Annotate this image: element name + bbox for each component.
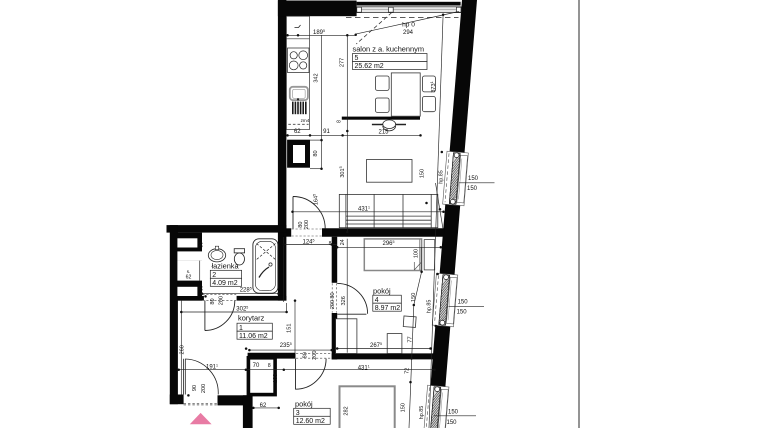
svg-text:24: 24	[340, 239, 346, 245]
svg-text:80: 80	[330, 292, 336, 298]
svg-text:62: 62	[294, 129, 301, 135]
svg-text:150: 150	[446, 420, 457, 426]
svg-text:150: 150	[458, 300, 469, 306]
svg-text:282: 282	[344, 406, 350, 415]
svg-text:zm4: zm4	[301, 118, 310, 123]
svg-text:150: 150	[419, 169, 425, 178]
svg-text:30: 30	[198, 285, 204, 291]
svg-text:62: 62	[260, 403, 267, 409]
svg-text:91: 91	[323, 129, 330, 135]
svg-text:277: 277	[340, 58, 346, 67]
svg-text:5: 5	[355, 55, 359, 62]
svg-text:62: 62	[186, 274, 192, 280]
svg-text:72: 72	[405, 368, 411, 374]
svg-text:77: 77	[407, 336, 413, 342]
svg-text:80: 80	[298, 221, 304, 227]
svg-text:pokój: pokój	[295, 400, 313, 409]
svg-text:150: 150	[411, 293, 417, 302]
svg-text:326: 326	[341, 296, 347, 305]
svg-text:80: 80	[210, 298, 216, 304]
svg-text:25.62 m2: 25.62 m2	[355, 63, 384, 70]
svg-text:pokój: pokój	[373, 287, 391, 296]
svg-text:294: 294	[403, 30, 414, 36]
svg-text:150: 150	[467, 186, 478, 192]
svg-text:80: 80	[313, 150, 319, 156]
svg-text:260: 260	[179, 345, 185, 354]
svg-text:70: 70	[253, 363, 260, 369]
svg-text:korytarz: korytarz	[238, 314, 265, 323]
svg-text:łazienka: łazienka	[212, 261, 240, 270]
svg-text:12.60 m2: 12.60 m2	[296, 418, 325, 425]
svg-text:150: 150	[448, 410, 459, 416]
svg-text:4: 4	[375, 297, 379, 304]
svg-text:200: 200	[304, 220, 310, 229]
svg-text:hp 0: hp 0	[402, 21, 415, 28]
svg-text:200: 200	[201, 384, 207, 393]
svg-text:200: 200	[219, 296, 225, 305]
svg-text:2: 2	[212, 272, 216, 279]
svg-text:30: 30	[198, 242, 204, 248]
svg-text:11.06 m2: 11.06 m2	[239, 333, 268, 340]
svg-text:215: 215	[378, 129, 389, 135]
svg-text:hp.85: hp.85	[426, 300, 432, 314]
svg-text:200: 200	[312, 351, 318, 360]
svg-text:8: 8	[336, 120, 342, 123]
svg-text:150: 150	[457, 310, 468, 316]
svg-text:80: 80	[303, 352, 309, 358]
svg-text:4.09 m2: 4.09 m2	[212, 280, 237, 287]
svg-text:150: 150	[400, 403, 406, 412]
svg-text:3: 3	[296, 410, 300, 417]
svg-text:200: 200	[330, 300, 336, 309]
svg-text:151: 151	[286, 324, 292, 333]
svg-text:hp.85: hp.85	[419, 406, 425, 420]
svg-text:8.97 m2: 8.97 m2	[375, 305, 400, 312]
svg-text:hp.85: hp.85	[438, 170, 444, 184]
svg-text:100: 100	[414, 249, 420, 258]
svg-text:90: 90	[192, 385, 198, 391]
svg-text:8: 8	[268, 363, 271, 369]
svg-text:1: 1	[239, 325, 243, 332]
svg-text:salon z a. kuchennym: salon z a. kuchennym	[353, 45, 424, 54]
svg-text:150: 150	[468, 176, 479, 182]
svg-text:8: 8	[329, 241, 332, 247]
svg-text:109: 109	[273, 374, 279, 383]
svg-text:342: 342	[313, 73, 319, 82]
